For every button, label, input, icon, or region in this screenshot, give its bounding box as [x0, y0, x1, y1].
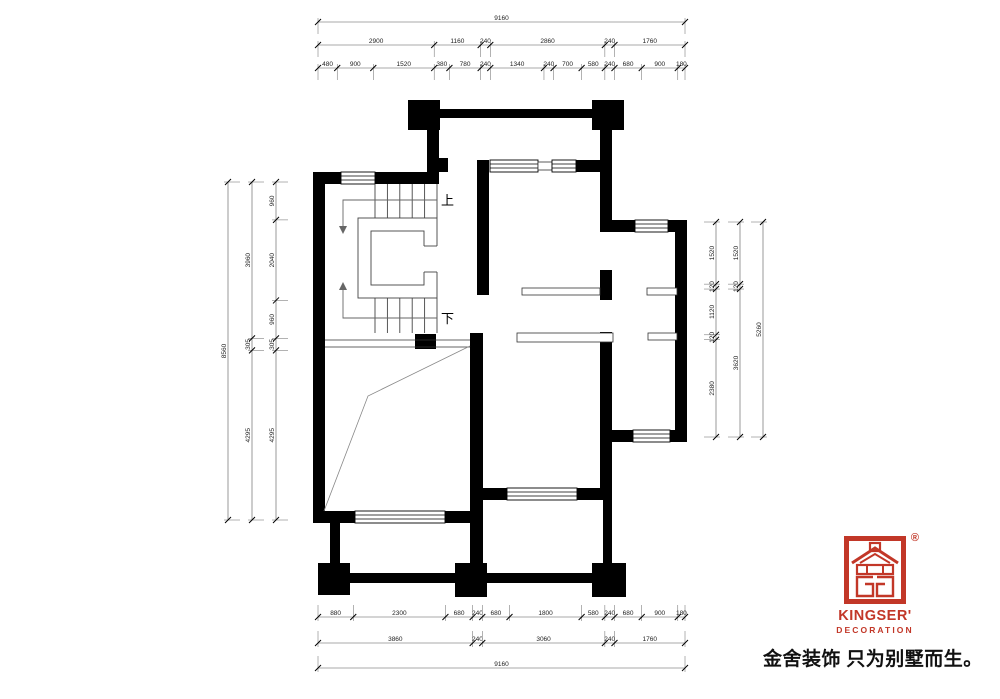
dim-line-bottom-row1: 88023006802406801800580240680900180 [315, 605, 688, 621]
staircase: 上 下 [339, 184, 454, 333]
dimension-label: 1340 [510, 61, 525, 68]
stair-up-label: 上 [441, 193, 454, 208]
window [507, 488, 577, 500]
floor-plan-canvas: 上 下 916029001160240286024017604809001520… [0, 0, 1000, 699]
dimension-label: 1760 [643, 38, 658, 45]
dimension-label: 3620 [733, 355, 740, 370]
dimension-label: 305 [269, 339, 276, 350]
dimension-label: 380 [436, 61, 447, 68]
dimension-label: 960 [269, 314, 276, 325]
dimension-label: 240 [604, 636, 615, 643]
dimension-label: 3960 [245, 253, 252, 268]
dimension-label: 1160 [450, 38, 464, 45]
dimension-label: 1520 [397, 61, 412, 68]
dimension-label: 2040 [269, 253, 276, 268]
dimension-label: 4295 [245, 428, 252, 443]
dim-line-top-row3: 4809001520380780240134024070058024068090… [315, 61, 688, 80]
dimension-label: 680 [623, 610, 634, 617]
dimension-label: 240 [472, 636, 483, 643]
dim-line-left-inner: 96020409603054295 [269, 179, 288, 523]
dimension-label: 240 [604, 38, 615, 45]
dimension-label: 3060 [536, 636, 551, 643]
dimension-label: 880 [330, 610, 341, 617]
brand-tagline: 金舍装饰 只为别墅而生。 [763, 644, 983, 671]
dimension-label: 2860 [540, 38, 555, 45]
dimension-label: 680 [623, 61, 634, 68]
window-mullion [538, 162, 552, 170]
window [633, 430, 670, 442]
dim-line-top-row1: 9160 [315, 15, 688, 34]
dimension-label: 1120 [709, 305, 716, 319]
dimension-label: 240 [480, 38, 491, 45]
window [635, 220, 668, 232]
kingser-emblem-icon [844, 536, 906, 604]
stair-core-inner [371, 231, 424, 285]
brand-subtitle: DECORATION [832, 625, 918, 635]
dimension-label: 9160 [494, 15, 509, 22]
dimension-label: 2900 [369, 38, 384, 45]
dimension-label: 580 [588, 61, 599, 68]
dimension-label: 240 [604, 610, 615, 617]
brand-name: KINGSER' [832, 608, 918, 624]
dimension-label: 3860 [388, 636, 403, 643]
dim-line-right-inner: 152012011201202380 [704, 219, 720, 440]
dimension-label: 680 [490, 610, 501, 617]
dimension-label: 2300 [392, 610, 407, 617]
window [341, 172, 375, 184]
dim-line-top-row2: 2900116024028602401760 [315, 38, 688, 57]
dim-line-right-middle: 15201203620 [728, 219, 744, 440]
dim-line-left-outer: 8560 [221, 179, 240, 523]
roof-slope-line [324, 346, 470, 511]
dimension-label: 240 [543, 61, 554, 68]
dim-line-left-middle: 39603054295 [245, 179, 264, 523]
dim-line-right-outer: 5260 [751, 219, 767, 440]
dimension-label: 700 [562, 61, 573, 68]
dimension-label: 5260 [756, 322, 763, 337]
dimension-label: 1520 [733, 245, 740, 260]
dimension-label: 680 [454, 610, 465, 617]
dimension-label: 4295 [269, 428, 276, 443]
stair-down-label: 下 [441, 311, 454, 326]
dimension-label: 900 [654, 61, 665, 68]
window [552, 160, 576, 172]
dim-line-bottom-row2: 386024030602401760 [315, 631, 688, 647]
dimension-label: 1520 [709, 245, 716, 260]
dimension-label: 2380 [709, 381, 716, 396]
dimension-label: 1760 [643, 636, 658, 643]
dimension-label: 305 [245, 339, 252, 350]
windows [341, 160, 670, 523]
dimension-label: 900 [654, 610, 665, 617]
dimension-label: 1800 [538, 610, 553, 617]
window [490, 160, 538, 172]
dimension-label: 240 [604, 61, 615, 68]
dim-line-bottom-row3: 9160 [315, 656, 688, 672]
dimension-label: 900 [350, 61, 361, 68]
dimension-label: 580 [588, 610, 599, 617]
dimension-label: 240 [480, 61, 491, 68]
dimension-label: 960 [269, 195, 276, 206]
brand-logo: ® KINGSER' DECORATION [832, 536, 918, 635]
registered-mark: ® [911, 532, 919, 544]
dimension-label: 780 [460, 61, 471, 68]
dimension-label: 9160 [494, 661, 509, 668]
dimension-label: 8560 [221, 343, 228, 358]
dimension-label: 480 [322, 61, 333, 68]
dimension-label: 240 [472, 610, 483, 617]
window [355, 511, 445, 523]
